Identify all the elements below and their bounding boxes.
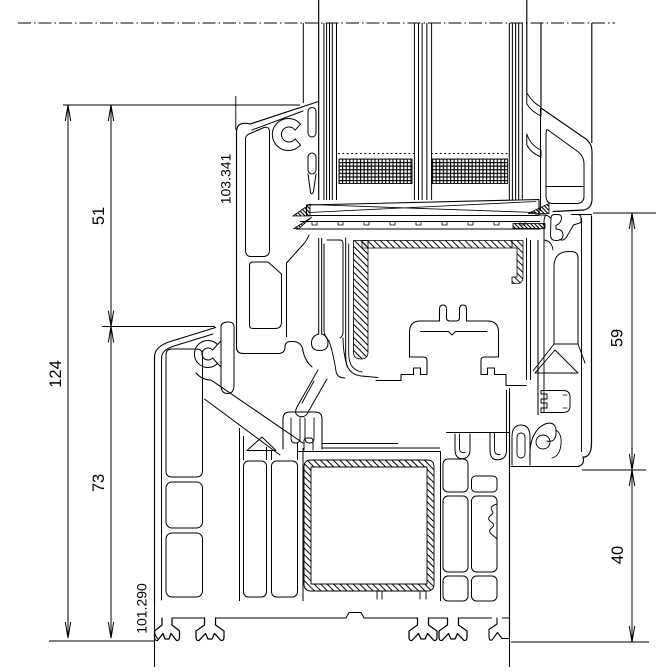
- svg-text:124: 124: [47, 360, 65, 388]
- svg-text:103.341: 103.341: [218, 153, 234, 204]
- svg-text:73: 73: [90, 474, 108, 492]
- svg-text:40: 40: [609, 546, 627, 564]
- svg-text:59: 59: [609, 329, 627, 347]
- svg-text:51: 51: [90, 207, 108, 225]
- svg-text:101.290: 101.290: [134, 583, 150, 634]
